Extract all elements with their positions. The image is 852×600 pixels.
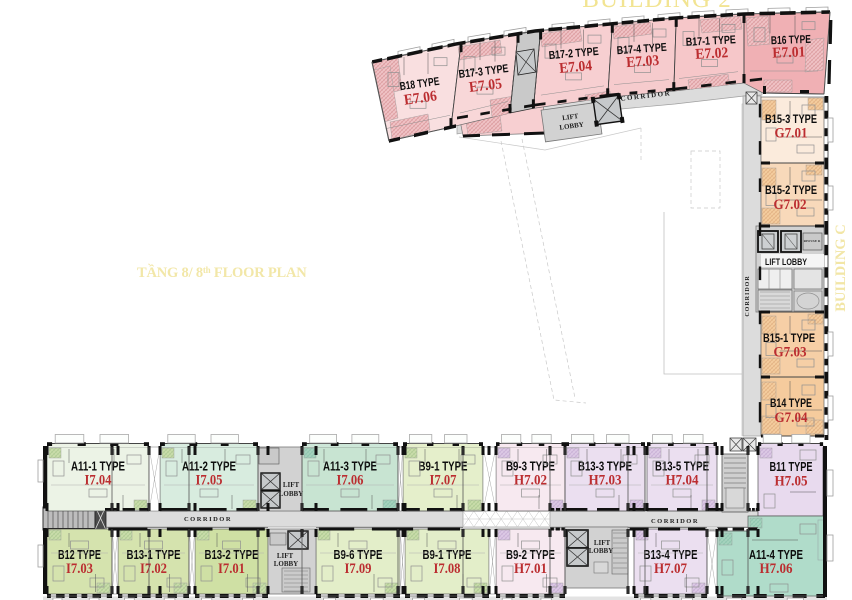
svg-text:E7.04: E7.04: [559, 58, 594, 77]
svg-text:B14 TYPE: B14 TYPE: [770, 396, 812, 410]
svg-text:I7.06: I7.06: [337, 473, 364, 489]
svg-text:E7.02: E7.02: [695, 45, 729, 63]
svg-text:B9-6 TYPE: B9-6 TYPE: [334, 548, 383, 562]
svg-text:LOBBY: LOBBY: [274, 560, 299, 568]
svg-text:B9-2 TYPE: B9-2 TYPE: [506, 548, 555, 562]
svg-text:H7.02: H7.02: [514, 473, 547, 489]
svg-text:B13-1 TYPE: B13-1 TYPE: [127, 548, 181, 562]
svg-text:E7.03: E7.03: [626, 53, 660, 71]
svg-text:BUILDING C: BUILDING C: [833, 224, 849, 311]
svg-text:H7.01: H7.01: [514, 561, 547, 577]
svg-text:TẦNG 8/ 8th FLOOR PLAN: TẦNG 8/ 8th FLOOR PLAN: [137, 264, 307, 281]
svg-text:B13-4 TYPE: B13-4 TYPE: [644, 548, 698, 562]
svg-text:E7.01: E7.01: [772, 44, 806, 61]
svg-text:H7.05: H7.05: [775, 474, 808, 490]
svg-text:B13-3 TYPE: B13-3 TYPE: [578, 460, 632, 474]
svg-text:B15-2 TYPE: B15-2 TYPE: [765, 183, 817, 197]
svg-text:B9-1 TYPE: B9-1 TYPE: [423, 548, 472, 562]
svg-text:LIFT: LIFT: [594, 539, 611, 547]
svg-text:I7.09: I7.09: [345, 561, 372, 577]
svg-text:I7.07: I7.07: [430, 473, 457, 489]
svg-text:CORRIDOR: CORRIDOR: [651, 518, 699, 525]
svg-text:LOBBY: LOBBY: [279, 490, 304, 498]
svg-text:A11-1 TYPE: A11-1 TYPE: [71, 460, 125, 474]
svg-text:B11 TYPE: B11 TYPE: [770, 460, 813, 474]
svg-text:A11-4 TYPE: A11-4 TYPE: [749, 548, 803, 562]
svg-text:G7.04: G7.04: [775, 410, 808, 426]
svg-text:A11-2 TYPE: A11-2 TYPE: [182, 460, 236, 474]
svg-text:I7.08: I7.08: [434, 561, 461, 577]
svg-text:CORRIDOR: CORRIDOR: [745, 275, 751, 316]
svg-text:H7.06: H7.06: [760, 561, 793, 577]
svg-text:B12 TYPE: B12 TYPE: [58, 548, 101, 562]
svg-text:H7.04: H7.04: [666, 473, 699, 489]
svg-text:H7.03: H7.03: [589, 473, 622, 489]
svg-text:LOBBY: LOBBY: [589, 547, 614, 555]
svg-text:I7.01: I7.01: [218, 561, 245, 577]
svg-text:I7.03: I7.03: [66, 561, 93, 577]
svg-text:B13-5 TYPE: B13-5 TYPE: [655, 460, 709, 474]
svg-text:I7.05: I7.05: [196, 473, 223, 489]
svg-text:CORRIDOR: CORRIDOR: [184, 516, 232, 523]
svg-text:LIFT: LIFT: [277, 552, 294, 560]
svg-text:LIFT: LIFT: [283, 481, 300, 489]
svg-text:A11-3 TYPE: A11-3 TYPE: [323, 460, 377, 474]
svg-text:REFUSE R: REFUSE R: [804, 239, 821, 243]
svg-text:B15-1 TYPE: B15-1 TYPE: [763, 331, 815, 345]
svg-text:G7.02: G7.02: [774, 197, 807, 213]
svg-text:H7.07: H7.07: [654, 561, 687, 577]
svg-text:LIFT LOBBY: LIFT LOBBY: [765, 257, 807, 268]
svg-text:I7.02: I7.02: [140, 561, 167, 577]
svg-text:B9-1 TYPE: B9-1 TYPE: [419, 460, 468, 474]
svg-text:I7.04: I7.04: [85, 473, 112, 489]
svg-text:G7.03: G7.03: [774, 345, 807, 361]
svg-text:G7.01: G7.01: [775, 126, 808, 142]
svg-text:B13-2 TYPE: B13-2 TYPE: [205, 548, 259, 562]
svg-text:B15-3 TYPE: B15-3 TYPE: [765, 112, 817, 126]
